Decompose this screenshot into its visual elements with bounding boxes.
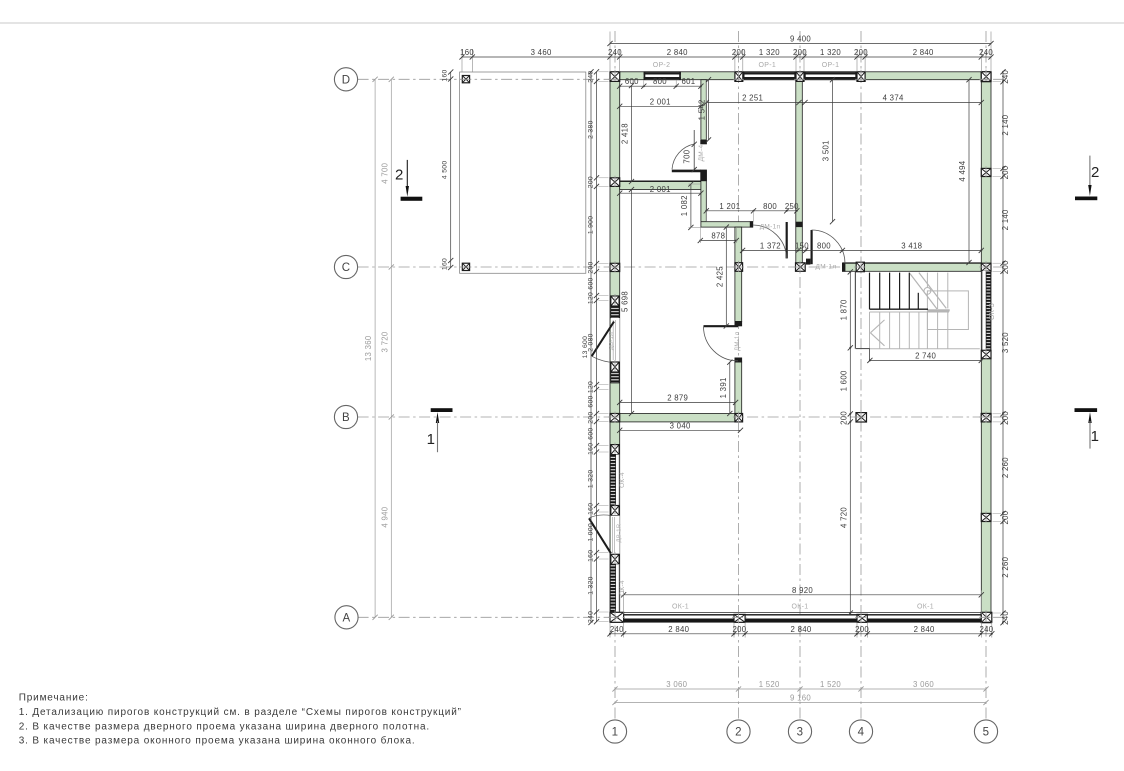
- svg-text:ОР-1: ОР-1: [822, 62, 840, 69]
- svg-text:2 840: 2 840: [914, 625, 935, 634]
- svg-text:8 920: 8 920: [792, 586, 813, 595]
- svg-text:800: 800: [653, 77, 667, 86]
- svg-text:13 600: 13 600: [582, 336, 589, 359]
- svg-text:200: 200: [1001, 411, 1010, 425]
- svg-text:1. Детализацию пирогов констру: 1. Детализацию пирогов конструкций см. в…: [19, 707, 462, 718]
- svg-text:ДВ-1R: ДВ-1R: [617, 524, 623, 543]
- svg-text:2 260: 2 260: [1001, 556, 1010, 577]
- svg-text:1 320: 1 320: [820, 48, 841, 57]
- svg-text:240: 240: [979, 625, 993, 634]
- svg-text:3 720: 3 720: [380, 331, 389, 352]
- svg-text:2 418: 2 418: [621, 123, 630, 144]
- svg-text:3 040: 3 040: [670, 421, 691, 430]
- svg-text:2 840: 2 840: [668, 625, 689, 634]
- svg-text:200: 200: [839, 411, 848, 425]
- svg-text:1 391: 1 391: [719, 377, 728, 398]
- svg-text:ДМ-1п: ДМ-1п: [760, 224, 781, 231]
- svg-text:1 082: 1 082: [680, 195, 689, 216]
- svg-text:2 001: 2 001: [650, 97, 671, 106]
- svg-text:ОК-1: ОК-1: [917, 604, 934, 611]
- svg-text:1 520: 1 520: [759, 680, 780, 689]
- svg-text:3 501: 3 501: [822, 140, 831, 161]
- svg-text:3 520: 3 520: [1001, 332, 1010, 353]
- svg-text:800: 800: [763, 202, 777, 211]
- svg-text:1: 1: [612, 727, 619, 739]
- svg-text:1 542: 1 542: [698, 99, 707, 120]
- svg-text:200: 200: [1001, 165, 1010, 179]
- svg-text:2 140: 2 140: [1001, 209, 1010, 230]
- svg-text:1 372: 1 372: [760, 241, 781, 250]
- svg-text:200: 200: [733, 625, 747, 634]
- svg-text:2: 2: [735, 727, 742, 739]
- svg-text:160: 160: [442, 258, 449, 270]
- svg-text:4 720: 4 720: [839, 507, 848, 528]
- svg-text:4 700: 4 700: [380, 162, 389, 183]
- svg-text:2 879: 2 879: [667, 393, 688, 402]
- svg-text:878: 878: [711, 232, 725, 241]
- svg-text:2 260: 2 260: [1001, 457, 1010, 478]
- svg-text:9 400: 9 400: [790, 35, 811, 44]
- svg-text:2 740: 2 740: [915, 351, 936, 360]
- svg-text:200: 200: [855, 625, 869, 634]
- svg-text:ДМ-1л: ДМ-1л: [735, 331, 741, 351]
- svg-text:ОР-2: ОР-2: [653, 62, 671, 69]
- svg-text:150: 150: [795, 241, 809, 250]
- svg-text:200: 200: [732, 48, 746, 57]
- svg-text:4 494: 4 494: [958, 160, 967, 181]
- svg-text:1 320: 1 320: [759, 48, 780, 57]
- svg-text:3 060: 3 060: [666, 680, 687, 689]
- svg-text:2. В качестве размера дверного: 2. В качестве размера дверного проема ук…: [19, 722, 430, 733]
- svg-text:2 840: 2 840: [790, 625, 811, 634]
- svg-text:2: 2: [395, 167, 404, 184]
- svg-text:200: 200: [854, 48, 868, 57]
- svg-text:A: A: [343, 612, 351, 624]
- svg-text:1 201: 1 201: [719, 202, 740, 211]
- svg-text:Примечание:: Примечание:: [19, 693, 89, 704]
- svg-text:ОК-4: ОК-4: [619, 580, 626, 596]
- svg-text:3 460: 3 460: [531, 48, 552, 57]
- svg-text:ОК-4: ОК-4: [619, 472, 626, 488]
- svg-text:700: 700: [682, 149, 691, 163]
- svg-text:5: 5: [983, 727, 990, 739]
- svg-text:ДВ-1Л: ДВ-1Л: [609, 332, 615, 350]
- svg-text:2 425: 2 425: [715, 266, 724, 287]
- svg-text:ОК-1: ОК-1: [672, 604, 689, 611]
- svg-text:B: B: [342, 412, 350, 424]
- svg-text:200: 200: [793, 48, 807, 57]
- svg-text:ДМ-4: ДМ-4: [698, 145, 705, 162]
- svg-text:D: D: [342, 74, 351, 86]
- svg-text:3 060: 3 060: [913, 680, 934, 689]
- svg-text:1: 1: [427, 431, 436, 448]
- svg-text:240: 240: [1001, 69, 1010, 83]
- svg-text:800: 800: [817, 241, 831, 250]
- svg-text:240: 240: [610, 625, 624, 634]
- svg-text:2 840: 2 840: [667, 48, 688, 57]
- svg-text:160: 160: [460, 48, 474, 57]
- svg-text:200: 200: [1001, 260, 1010, 274]
- svg-text:9 160: 9 160: [790, 694, 811, 703]
- svg-text:240: 240: [608, 48, 622, 57]
- svg-text:C: C: [342, 262, 351, 274]
- svg-text:4: 4: [858, 727, 865, 739]
- svg-text:200: 200: [1001, 510, 1010, 524]
- svg-text:1 870: 1 870: [839, 299, 848, 320]
- svg-text:ОК-3: ОК-3: [989, 303, 996, 320]
- svg-text:4 500: 4 500: [442, 161, 449, 180]
- svg-text:601: 601: [682, 77, 696, 86]
- svg-text:1: 1: [1091, 428, 1100, 445]
- svg-text:5 698: 5 698: [621, 291, 630, 312]
- svg-text:3. В качестве размера оконного: 3. В качестве размера оконного проема ук…: [19, 735, 416, 747]
- svg-text:2 140: 2 140: [1001, 114, 1010, 135]
- svg-text:13 360: 13 360: [364, 335, 373, 361]
- svg-text:ДМ-1л: ДМ-1л: [816, 264, 837, 271]
- svg-text:1 600: 1 600: [839, 370, 848, 391]
- svg-text:4 940: 4 940: [380, 506, 389, 527]
- svg-text:2 840: 2 840: [913, 48, 934, 57]
- svg-text:1 520: 1 520: [820, 680, 841, 689]
- svg-text:3: 3: [797, 727, 804, 739]
- svg-text:240: 240: [979, 48, 993, 57]
- svg-text:2 251: 2 251: [742, 94, 763, 103]
- svg-text:240: 240: [1001, 611, 1010, 625]
- svg-text:ОК-1: ОК-1: [792, 604, 809, 611]
- svg-text:2: 2: [1091, 164, 1100, 181]
- svg-text:4 374: 4 374: [883, 94, 904, 103]
- svg-text:ОР-1: ОР-1: [759, 62, 777, 69]
- svg-text:3 418: 3 418: [901, 241, 922, 250]
- svg-text:250: 250: [785, 202, 799, 211]
- svg-text:160: 160: [442, 69, 449, 81]
- svg-text:2 001: 2 001: [650, 185, 671, 194]
